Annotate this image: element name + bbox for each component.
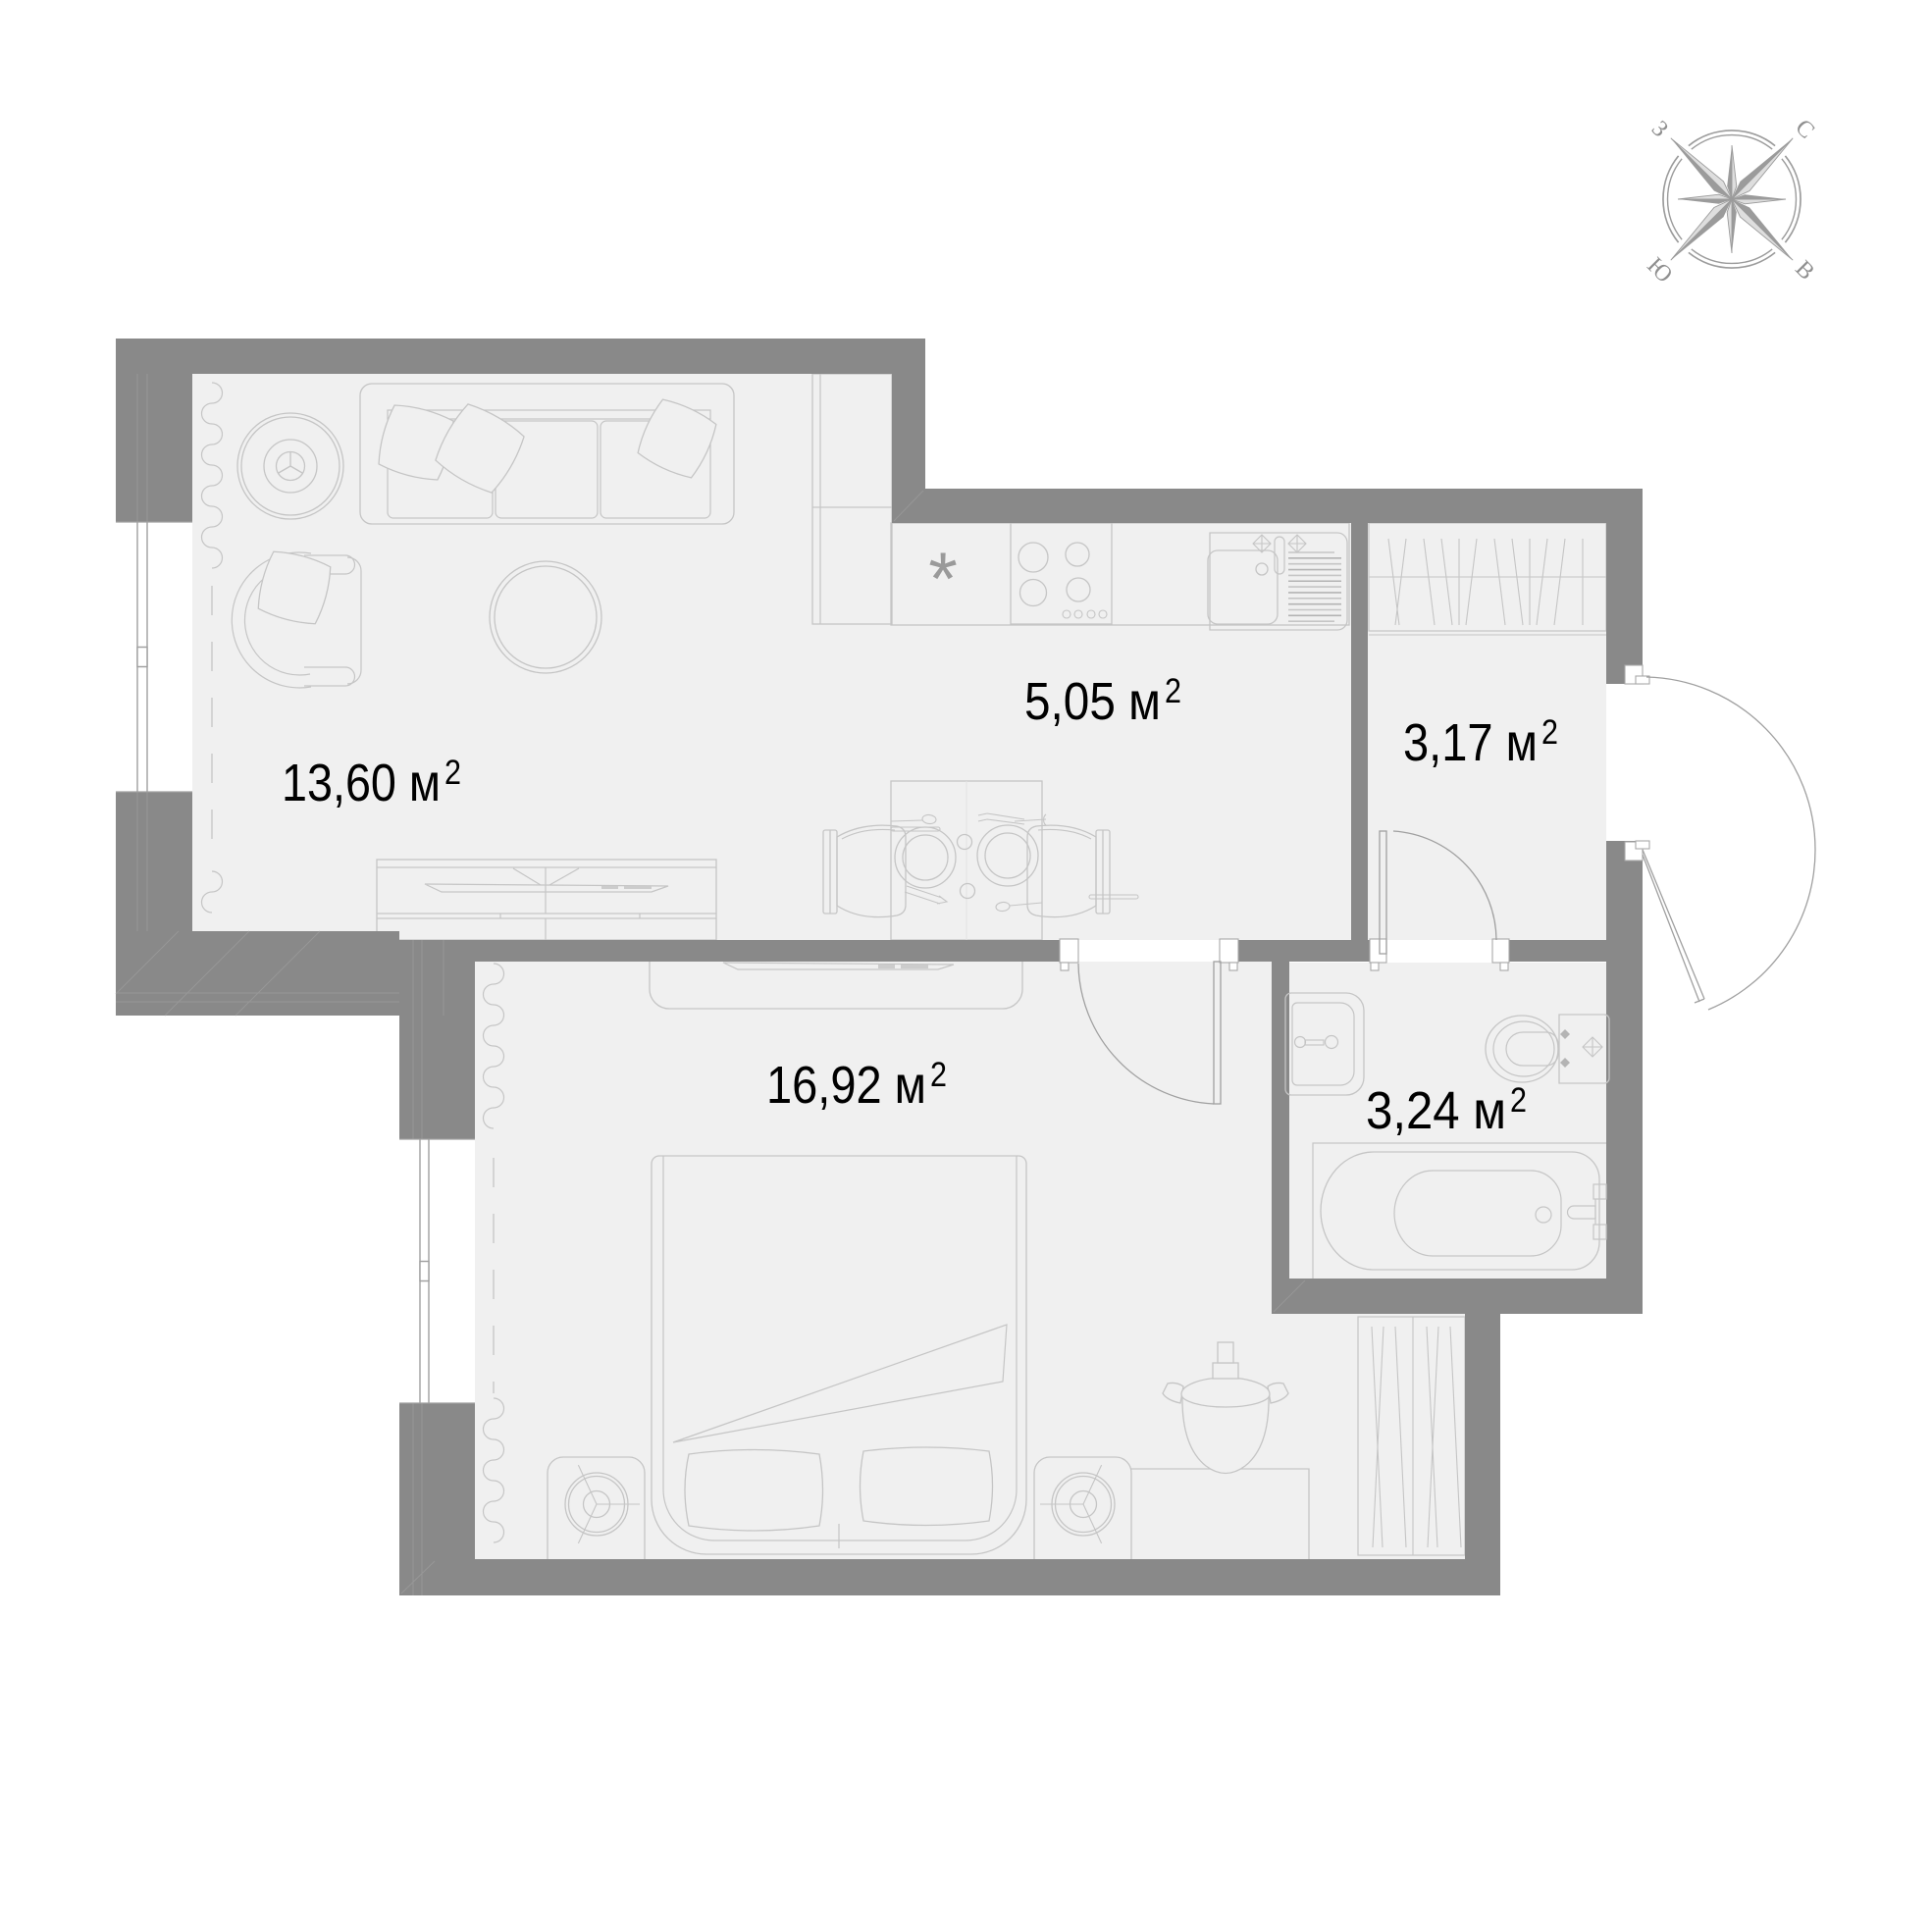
svg-text:2: 2 <box>930 1056 947 1094</box>
svg-text:16,92 м: 16,92 м <box>766 1056 926 1115</box>
svg-text:2: 2 <box>1165 672 1181 710</box>
svg-text:13,60 м: 13,60 м <box>282 754 441 812</box>
svg-text:3,24 м: 3,24 м <box>1366 1081 1506 1140</box>
svg-text:2: 2 <box>1510 1081 1527 1120</box>
svg-text:3,17 м: 3,17 м <box>1403 713 1538 772</box>
svg-text:*: * <box>928 538 958 621</box>
svg-text:2: 2 <box>1541 713 1558 752</box>
svg-text:2: 2 <box>444 754 461 792</box>
svg-text:5,05 м: 5,05 м <box>1024 672 1161 731</box>
